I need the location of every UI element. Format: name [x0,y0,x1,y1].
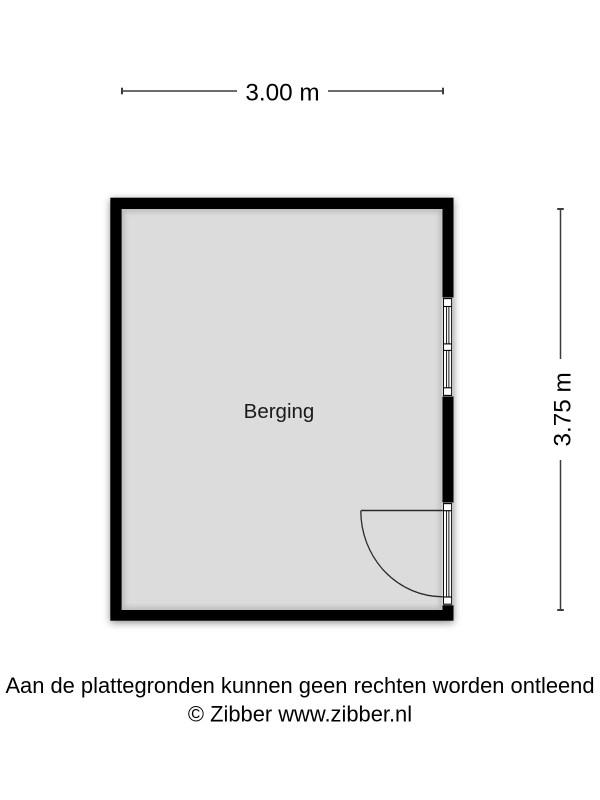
svg-text:© Zibber www.zibber.nl: © Zibber www.zibber.nl [188,701,412,726]
svg-text:3.75 m: 3.75 m [550,372,577,446]
svg-text:Aan de plattegronden kunnen ge: Aan de plattegronden kunnen geen rechten… [5,673,594,698]
svg-text:3.00 m: 3.00 m [245,80,319,107]
svg-text:Berging: Berging [244,400,315,423]
